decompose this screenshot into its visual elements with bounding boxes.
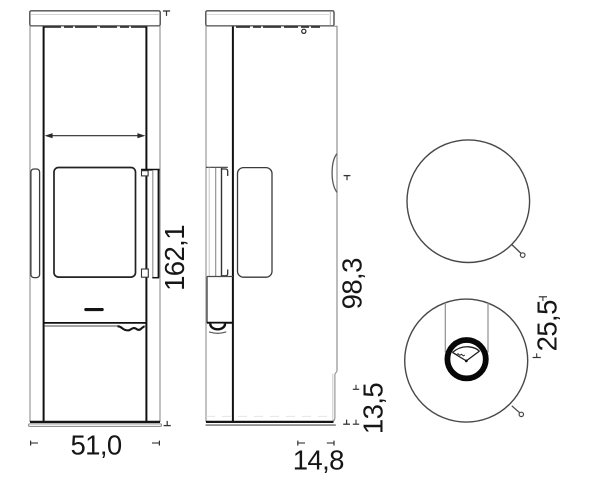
svg-text:25,5: 25,5 [531, 300, 562, 351]
svg-text:51,0: 51,0 [70, 430, 121, 461]
svg-text:98,3: 98,3 [336, 258, 367, 309]
svg-text:14,8: 14,8 [293, 444, 344, 475]
svg-text:162,1: 162,1 [159, 225, 190, 291]
svg-text:13,5: 13,5 [357, 383, 388, 434]
